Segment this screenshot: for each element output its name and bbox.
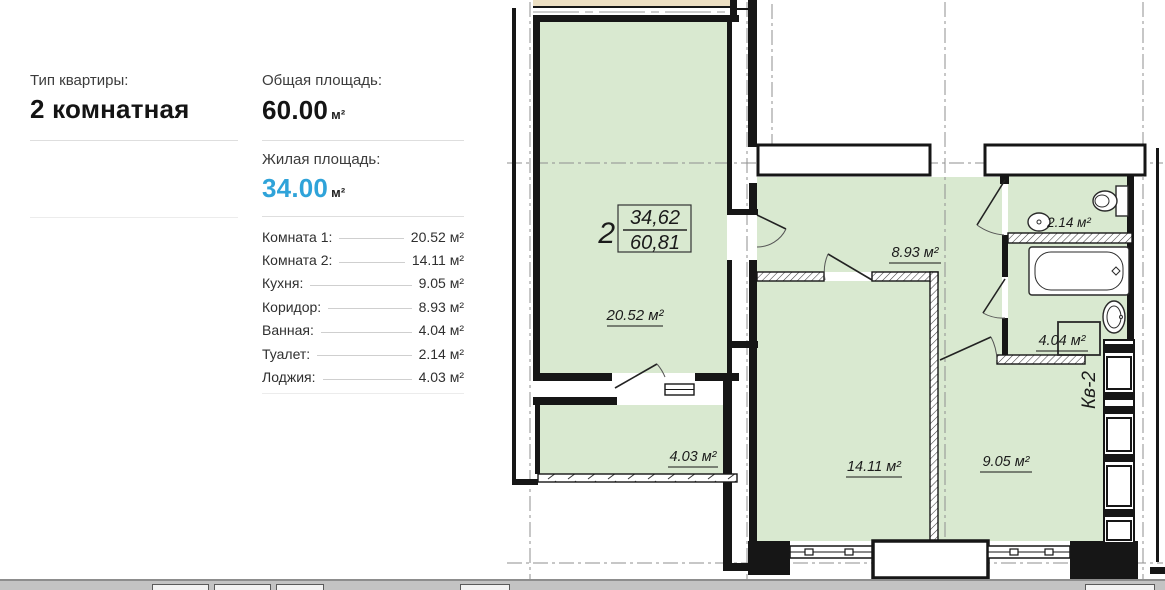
room-list-item: Туалет:2.14 м² xyxy=(262,342,464,365)
room-name: Ванная: xyxy=(262,322,314,338)
room-list-item: Комната 1:20.52 м² xyxy=(262,225,464,248)
living-area-label: Жилая площадь: xyxy=(262,151,380,168)
bottom-tab[interactable] xyxy=(214,584,271,590)
bathroom-label: 4.04 м² xyxy=(1038,333,1086,349)
divider xyxy=(262,140,464,141)
room-name: Коридор: xyxy=(262,299,321,315)
room-area-list: Комната 1:20.52 м² Комната 2:14.11 м² Ку… xyxy=(262,225,464,389)
leader-line xyxy=(321,332,412,333)
room-name: Комната 2: xyxy=(262,252,332,268)
room-area: 14.11 м² xyxy=(412,252,464,268)
room-list-item: Комната 2:14.11 м² xyxy=(262,248,464,271)
bottom-tab[interactable] xyxy=(1085,584,1155,590)
window-band-right xyxy=(985,145,1145,175)
bottom-tab[interactable] xyxy=(460,584,510,590)
apartment-type-label: Тип квартиры: xyxy=(30,72,128,89)
room-name: Лоджия: xyxy=(262,369,316,385)
floor-plan: 2 34,62 60,81 20.52 м² 4.03 м² 8.93 м² 1… xyxy=(505,0,1165,590)
living-area-value: 34.00м² xyxy=(262,173,345,204)
divider xyxy=(262,393,464,394)
room-area: 9.05 м² xyxy=(419,275,464,291)
leader-line xyxy=(317,355,411,356)
total-area-value: 60.00м² xyxy=(262,95,345,126)
unit-id-label: Кв-2 xyxy=(1079,371,1100,409)
corridor-strip-area xyxy=(938,272,1002,357)
room-name: Туалет: xyxy=(262,346,310,362)
apartment-type-value: 2 комнатная xyxy=(30,94,190,125)
vent-shaft xyxy=(1104,340,1134,543)
total-area-unit: м² xyxy=(331,107,345,122)
total-area-label: Общая площадь: xyxy=(262,72,382,89)
total-area-number: 60.00 xyxy=(262,95,328,125)
loggia-label: 4.03 м² xyxy=(669,449,717,465)
room-area: 8.93 м² xyxy=(419,299,464,315)
wc-label: 2.14 м² xyxy=(1046,215,1091,230)
leader-line xyxy=(339,262,404,263)
loggia-glazing xyxy=(538,474,737,482)
balcony-door-unit xyxy=(873,541,988,578)
divider xyxy=(262,216,464,217)
unit-number: 2 xyxy=(597,217,615,250)
bottom-tab[interactable] xyxy=(152,584,209,590)
divider xyxy=(30,217,238,218)
leader-line xyxy=(328,308,411,309)
kitchen-label: 9.05 м² xyxy=(982,454,1030,470)
toilet-tank xyxy=(1116,186,1128,216)
room-area: 4.03 м² xyxy=(419,369,464,385)
leader-line xyxy=(310,285,411,286)
divider xyxy=(30,140,238,141)
leader-line xyxy=(323,379,412,380)
corridor-label: 8.93 м² xyxy=(891,245,939,261)
room1-label: 20.52 м² xyxy=(606,307,665,324)
room-name: Комната 1: xyxy=(262,229,332,245)
living-area-stamp: 34,62 xyxy=(630,207,680,229)
room-area: 4.04 м² xyxy=(419,322,464,338)
neighbour-strip xyxy=(533,0,737,12)
room-list-item: Лоджия:4.03 м² xyxy=(262,365,464,388)
room-list-item: Коридор:8.93 м² xyxy=(262,295,464,318)
room2-label: 14.11 м² xyxy=(847,459,902,475)
leader-line xyxy=(339,238,403,239)
corridor-area xyxy=(757,177,1002,272)
window-band-left xyxy=(758,145,930,175)
room2-area xyxy=(757,281,930,541)
living-area-number: 34.00 xyxy=(262,173,328,203)
room-area: 2.14 м² xyxy=(419,346,464,362)
bottom-toolbar xyxy=(0,579,1165,590)
bottom-tab[interactable] xyxy=(276,584,324,590)
apartment-info-panel: Тип квартиры: 2 комнатная Общая площадь:… xyxy=(0,0,505,590)
room-name: Кухня: xyxy=(262,275,303,291)
living-area-unit: м² xyxy=(331,185,345,200)
room-area: 20.52 м² xyxy=(411,229,464,245)
total-area-stamp: 60,81 xyxy=(630,232,680,254)
room-list-item: Кухня:9.05 м² xyxy=(262,272,464,295)
room-list-item: Ванная:4.04 м² xyxy=(262,319,464,342)
